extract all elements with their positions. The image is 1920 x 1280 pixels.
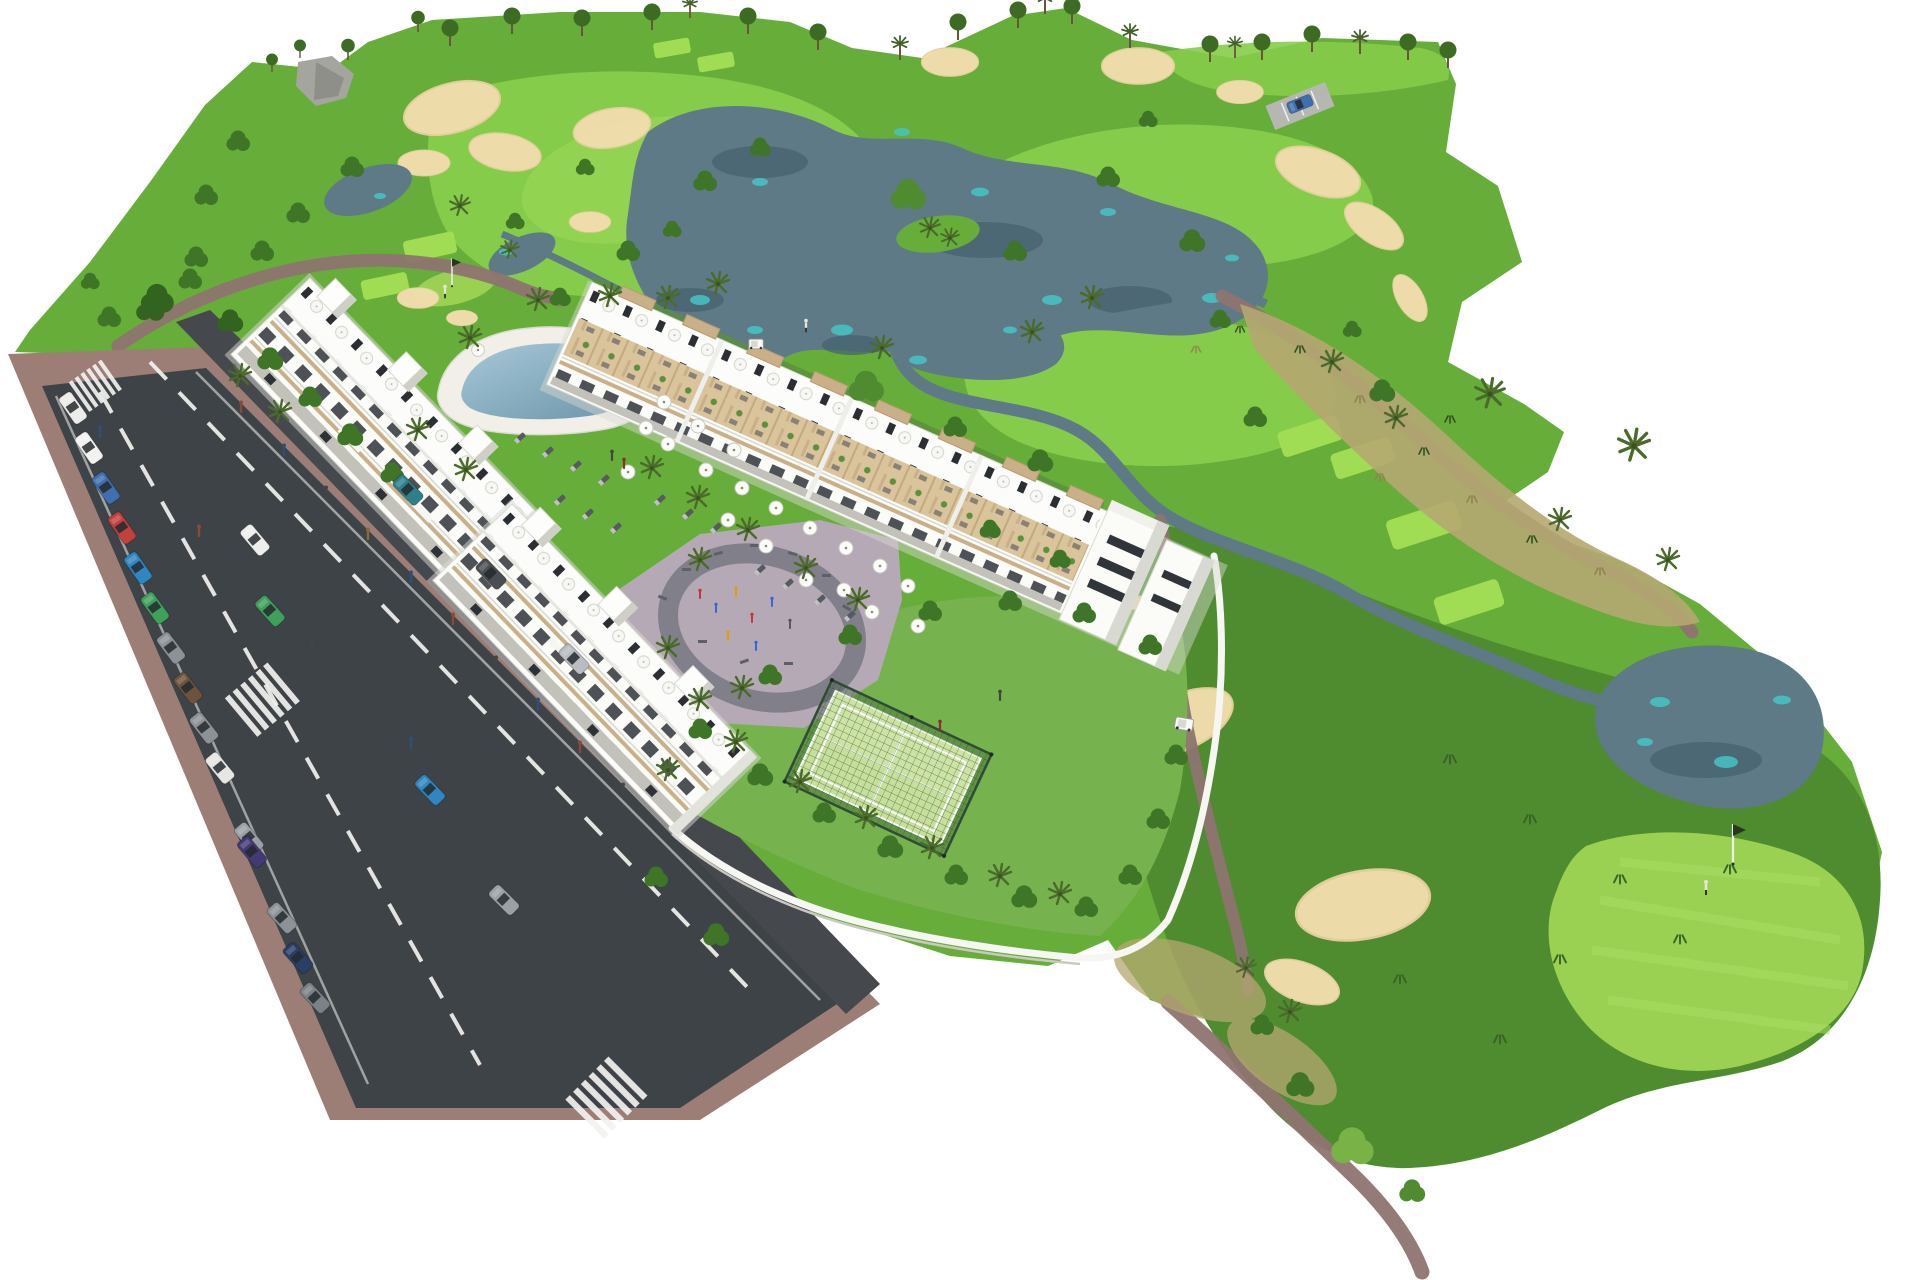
bunker (1102, 48, 1175, 84)
umbrella (727, 443, 741, 457)
bunker (1217, 80, 1264, 103)
teal (909, 356, 927, 365)
umbrella (799, 573, 813, 587)
umbrella (759, 539, 773, 553)
umbrella (901, 579, 915, 593)
teal (374, 193, 386, 199)
teal (1042, 295, 1062, 305)
umbrella (865, 605, 879, 619)
umbrella (721, 513, 735, 527)
umbrella (661, 437, 675, 451)
umbrella (691, 419, 705, 433)
umbrella (839, 541, 853, 555)
umbrella (699, 463, 713, 477)
umbrella (735, 481, 749, 495)
teal (831, 325, 853, 336)
teal (747, 326, 763, 334)
teal (1773, 696, 1791, 705)
teal (1225, 255, 1239, 262)
umbrella (911, 619, 925, 633)
umbrella (803, 521, 817, 535)
bunker (446, 310, 477, 326)
cart (749, 339, 763, 349)
golf-resort-aerial-render (0, 0, 1920, 1280)
teal (752, 178, 768, 186)
teal (1637, 738, 1653, 746)
teal (1100, 208, 1116, 216)
teal (1714, 756, 1738, 768)
umbrella (657, 395, 671, 409)
umbrella (639, 421, 653, 435)
teal (971, 188, 989, 197)
aerial-render-canvas (0, 0, 1920, 1280)
teal (894, 128, 910, 136)
bunker (569, 212, 611, 233)
teal (1650, 697, 1670, 707)
umbrella (769, 501, 783, 515)
bunker (921, 48, 978, 77)
teal (1003, 327, 1017, 334)
teal (690, 295, 710, 305)
umbrella (873, 559, 887, 573)
bunker (397, 288, 439, 309)
